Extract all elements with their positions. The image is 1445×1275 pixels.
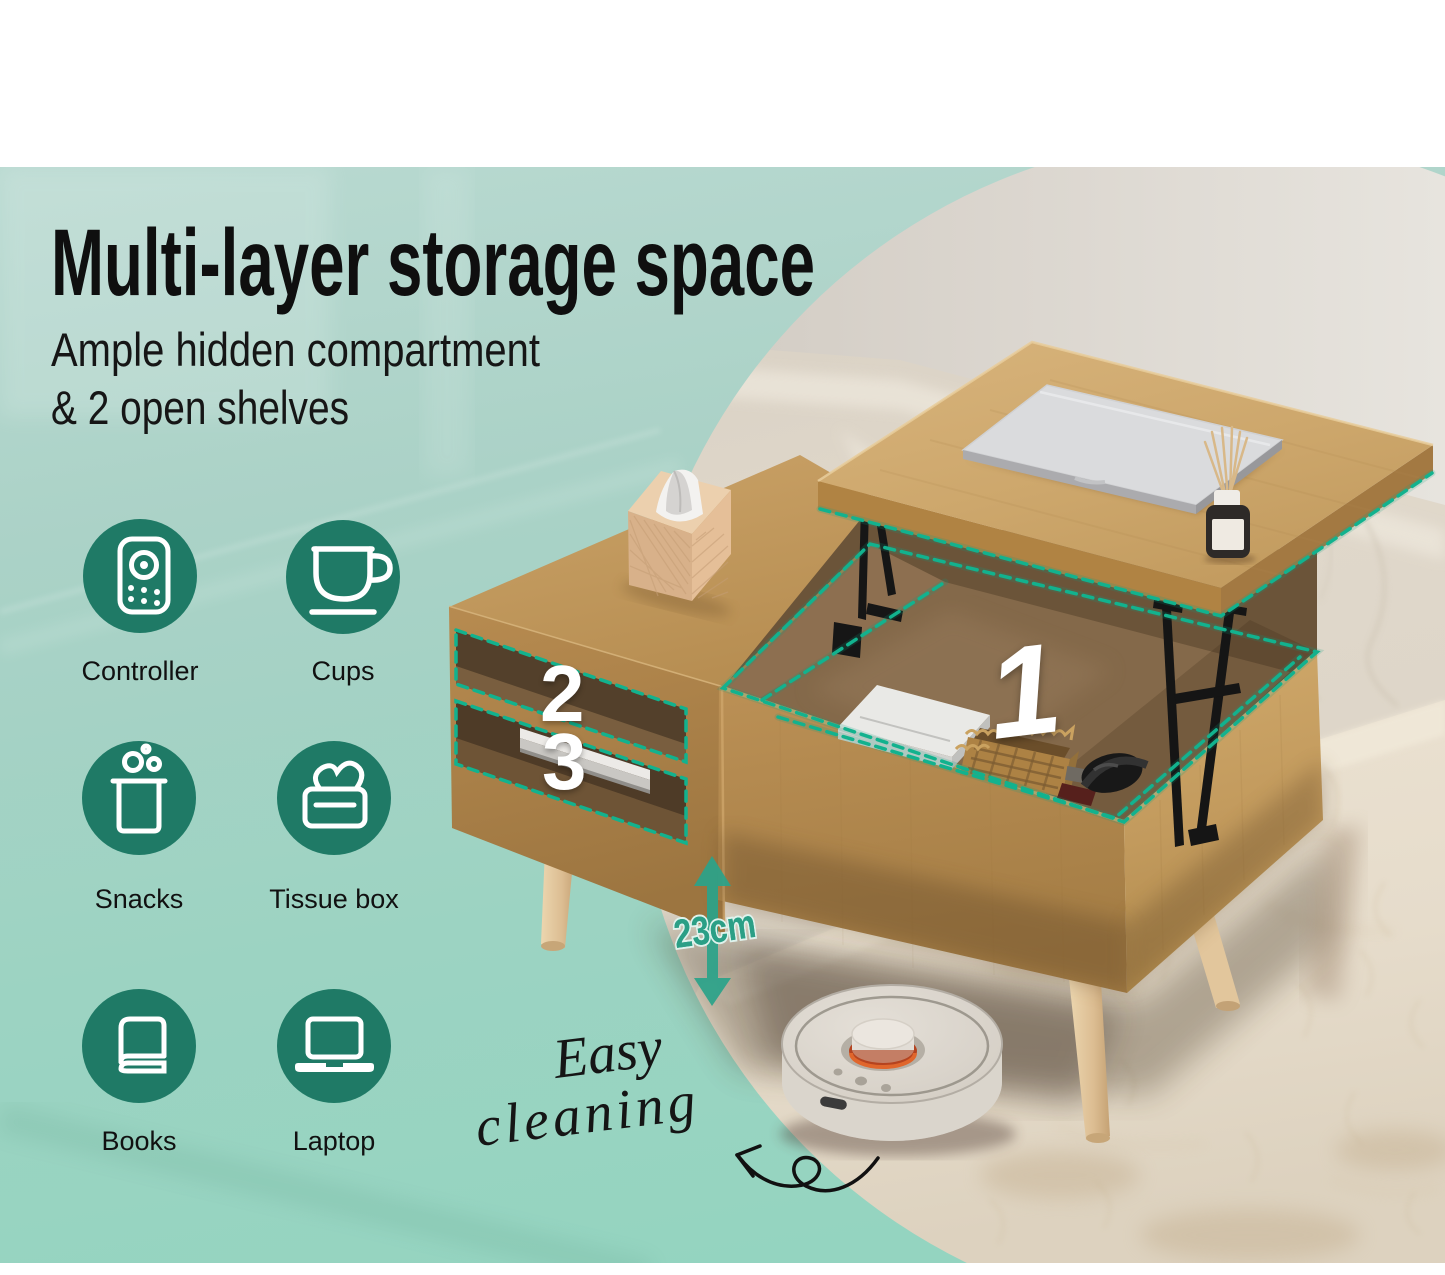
svg-text:Controller: Controller: [81, 656, 198, 686]
svg-text:& 2 open shelves: & 2 open shelves: [51, 381, 349, 434]
svg-text:Laptop: Laptop: [293, 1126, 376, 1156]
svg-text:Ample hidden compartment: Ample hidden compartment: [51, 323, 540, 376]
svg-text:Cups: Cups: [311, 656, 374, 686]
svg-text:Multi-layer storage space: Multi-layer storage space: [51, 210, 815, 316]
svg-text:Tissue box: Tissue box: [269, 884, 399, 914]
svg-text:Books: Books: [101, 1126, 176, 1156]
svg-text:Snacks: Snacks: [95, 884, 184, 914]
svg-text:3: 3: [542, 717, 587, 806]
